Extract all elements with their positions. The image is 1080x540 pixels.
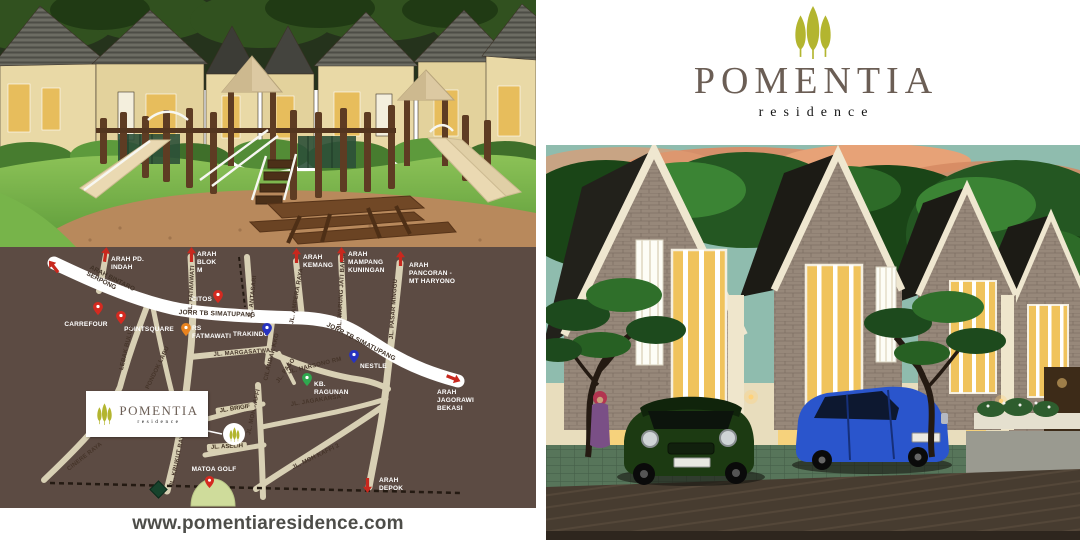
map-label-matoa-golf: MATOA GOLF xyxy=(190,466,238,474)
brand-tagline: residence xyxy=(752,105,875,121)
houses-render-photo xyxy=(546,145,1080,540)
location-map: ARAH PD. INDAH ARAH BLOK M ARAH KEMANG A… xyxy=(0,247,536,508)
map-label-arah-kemang: ARAH KEMANG xyxy=(303,254,335,270)
pin-nestle-icon xyxy=(349,350,359,363)
map-inset-logo: POMENTIA residence xyxy=(86,391,208,437)
site-marker-trees-icon xyxy=(228,427,241,442)
pin-matoa-golf-icon xyxy=(205,476,214,488)
brand-trees-icon xyxy=(790,5,836,59)
pin-pointsquare-icon xyxy=(116,311,126,324)
map-label-arah-jagorawi: ARAH JAGORAWI BEKASI xyxy=(437,389,479,412)
map-inset-brand-tagline: residence xyxy=(119,419,198,425)
map-label-nestle: NESTLE xyxy=(360,363,390,371)
map-inset-trees-icon xyxy=(95,403,114,425)
pin-carrefour-icon xyxy=(93,302,103,315)
website-url: www.pomentiaresidence.com xyxy=(132,513,403,535)
pin-kb-ragunan-icon xyxy=(302,373,312,386)
flyer: ARAH PD. INDAH ARAH BLOK M ARAH KEMANG A… xyxy=(0,0,1080,540)
pin-rs-fatmawati-icon xyxy=(181,323,191,336)
map-label-arah-mampang: ARAH MAMPANG KUNINGAN xyxy=(348,251,388,274)
map-inset-brand-name: POMENTIA xyxy=(119,404,198,417)
site-location-marker xyxy=(223,423,245,445)
website-strip: www.pomentiaresidence.com xyxy=(0,508,536,540)
map-label-arah-pancoran: ARAH PANCORAN - MT HARYONO xyxy=(409,262,459,285)
brand-logo-block: POMENTIA residence xyxy=(546,0,1080,145)
map-label-arah-pd-indah: ARAH PD. INDAH xyxy=(111,256,147,272)
brand-name: POMENTIA xyxy=(688,62,938,100)
map-label-trakindo: TRAKINDO xyxy=(233,331,263,339)
map-label-carrefour: CARREFOUR xyxy=(64,321,108,329)
playground-photo xyxy=(0,0,536,247)
pin-trakindo-icon xyxy=(262,323,272,336)
map-label-rs-fatmawati: RS FATMAWATI xyxy=(192,325,234,341)
map-label-arah-blok-m: ARAH BLOK M xyxy=(197,251,223,274)
pin-citos-icon xyxy=(213,290,223,303)
map-label-arah-depok: ARAH DEPOK xyxy=(379,477,405,493)
